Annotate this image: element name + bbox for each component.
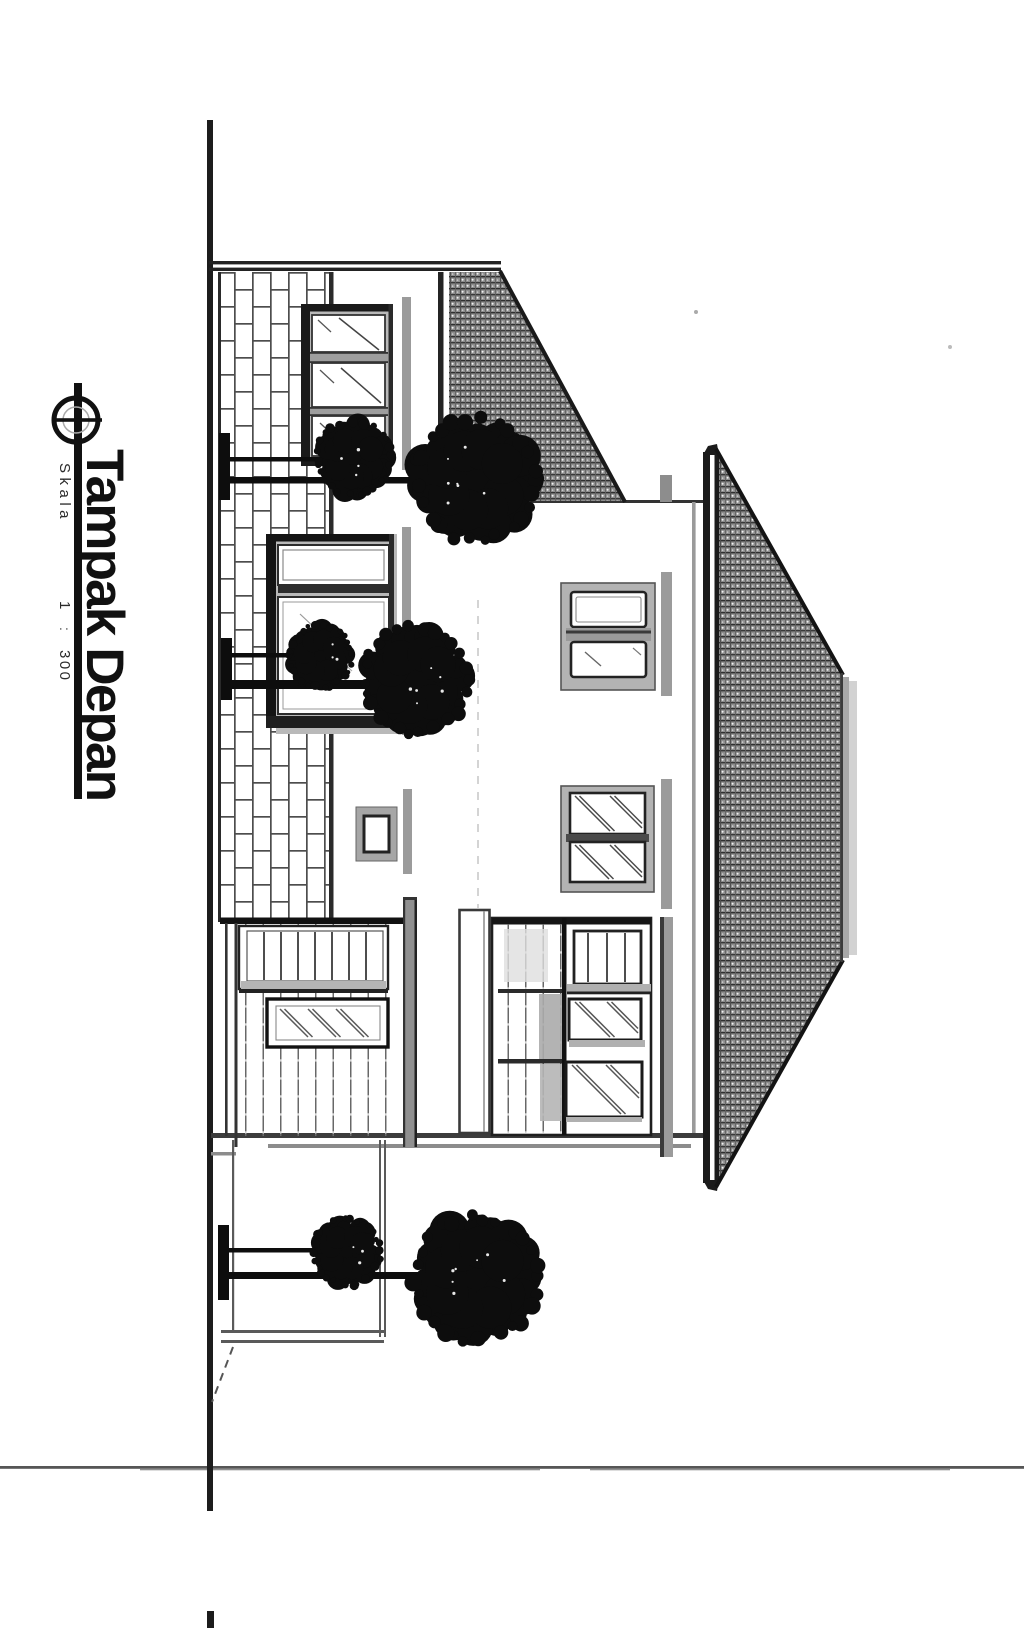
svg-text:Tampak Depan: Tampak Depan	[75, 449, 134, 802]
svg-text:1: 1	[56, 601, 73, 609]
svg-text:Skala: Skala	[56, 463, 73, 523]
svg-text:300: 300	[56, 650, 73, 683]
svg-text::: :	[57, 627, 73, 631]
